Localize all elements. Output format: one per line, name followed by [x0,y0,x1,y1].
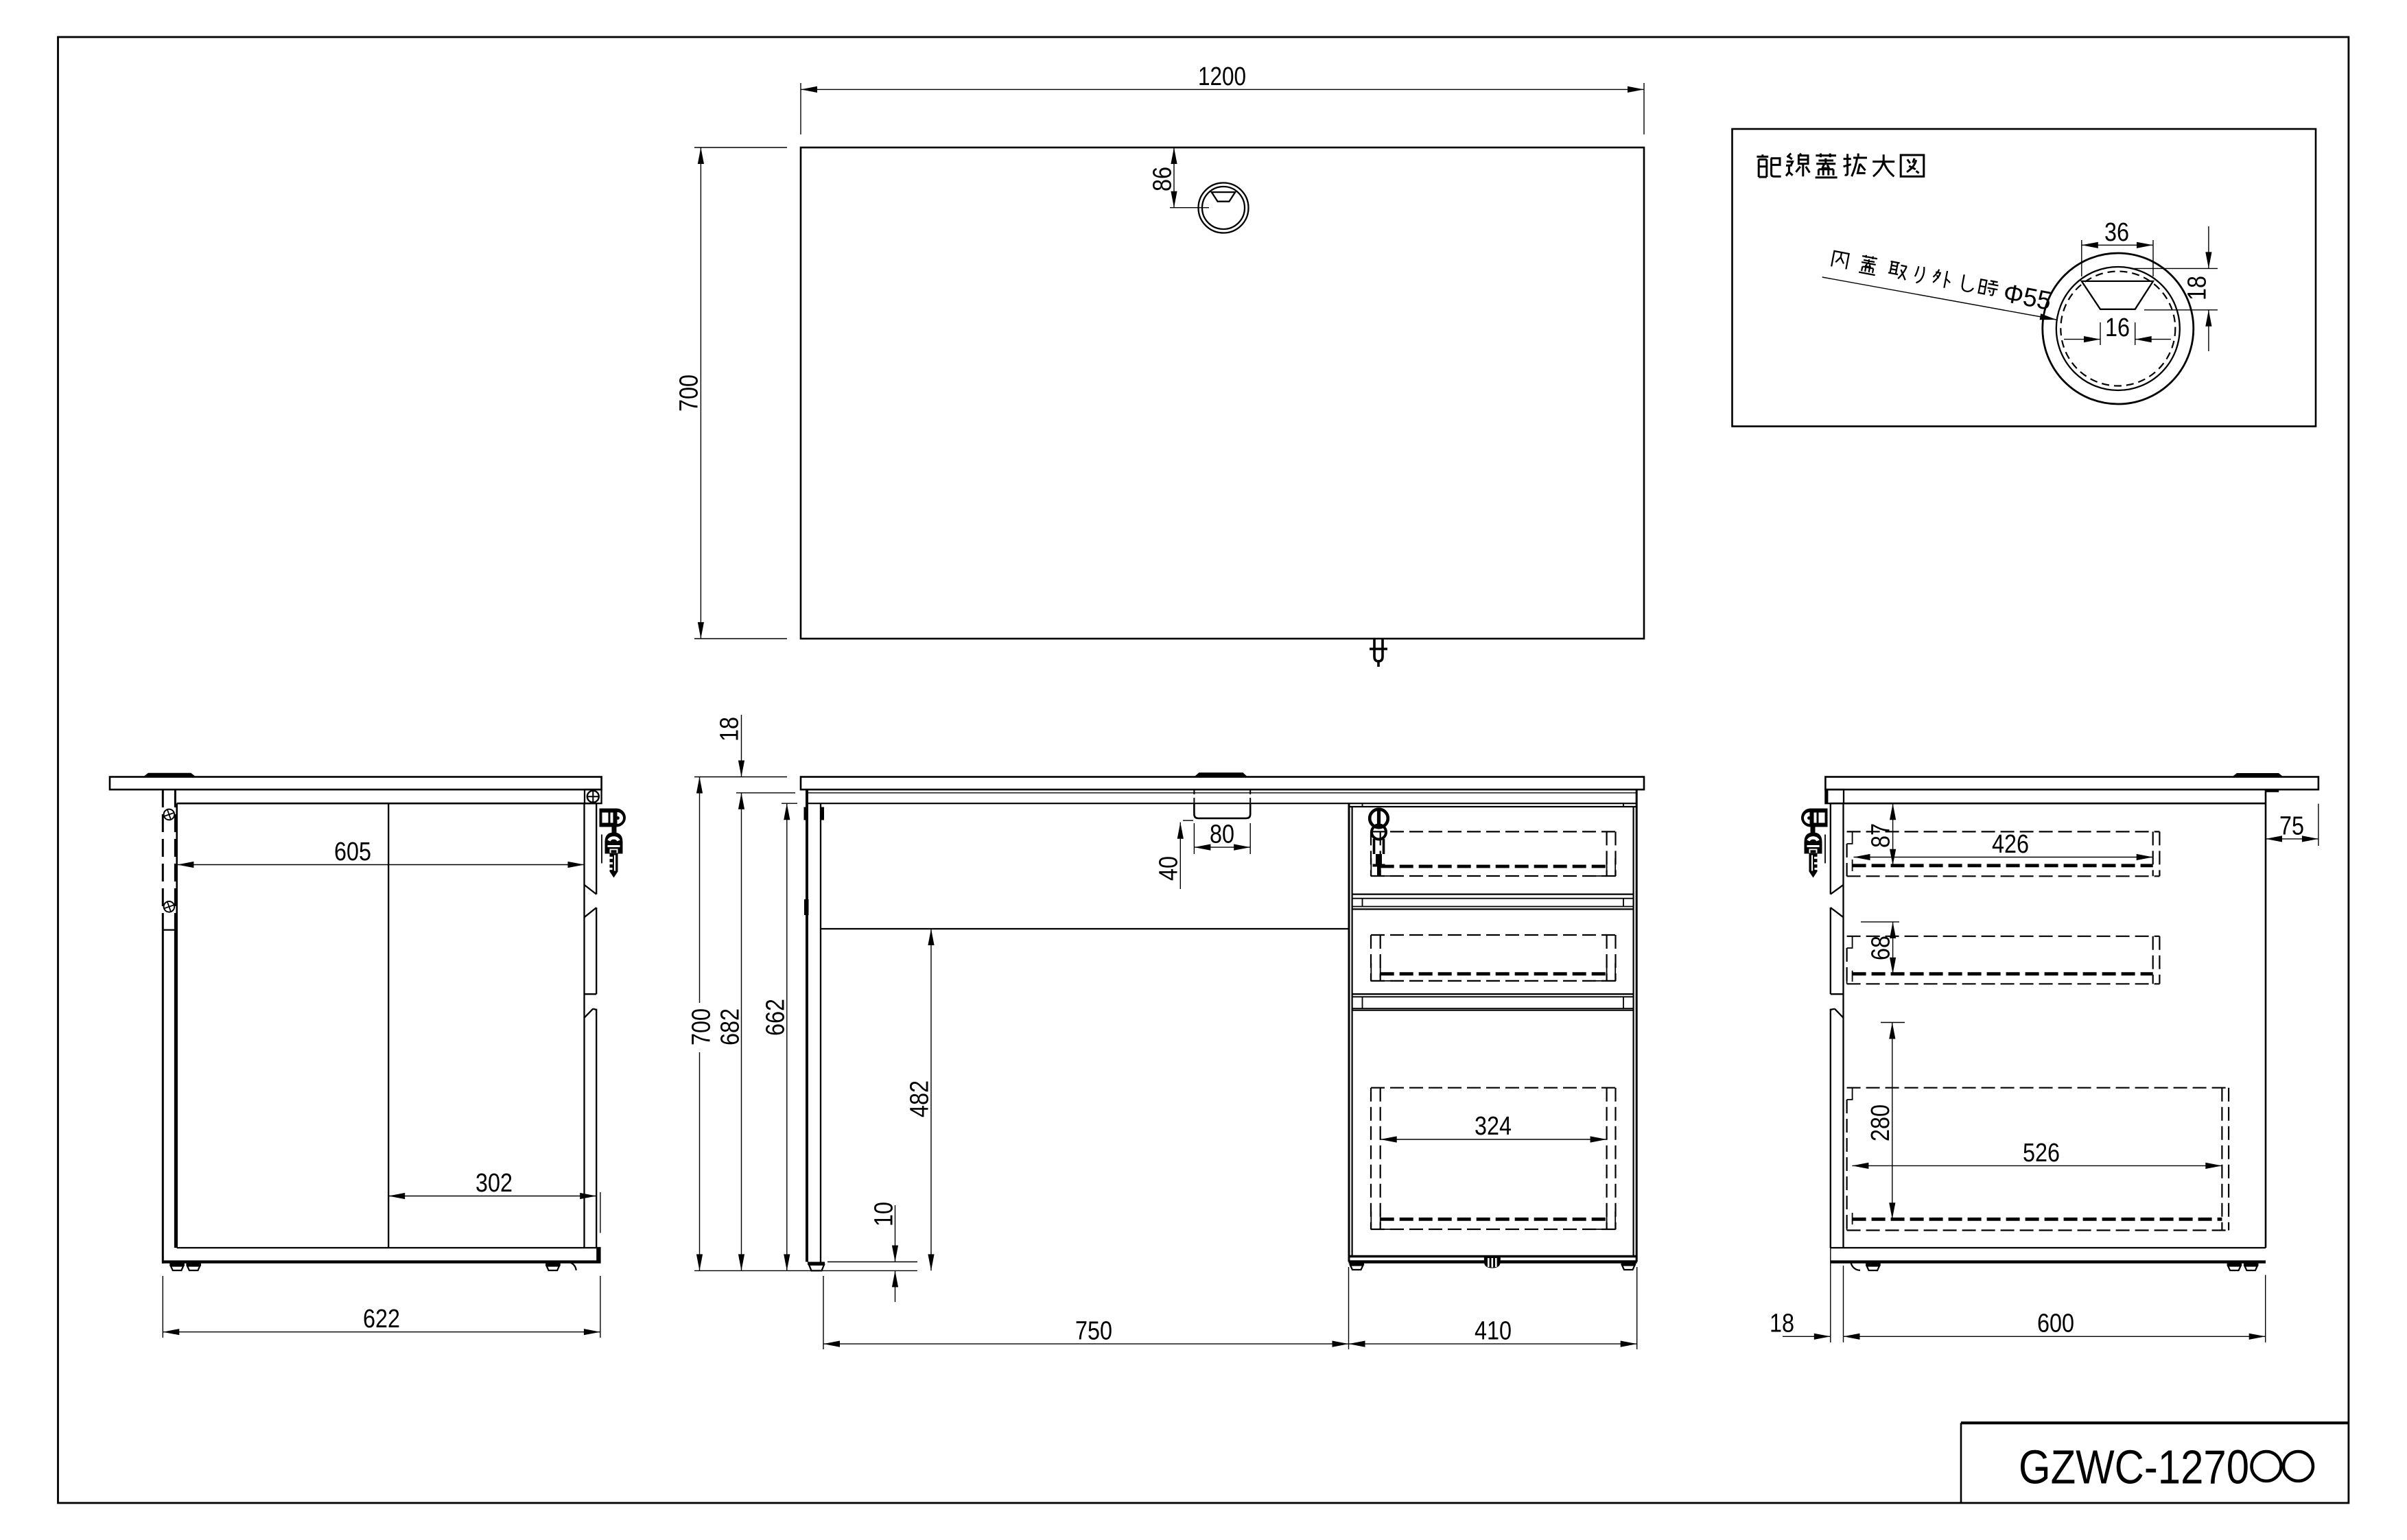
svg-text:280: 280 [1866,1104,1895,1141]
svg-text:526: 526 [2023,1139,2060,1168]
svg-text:86: 86 [1149,167,1177,191]
svg-text:18: 18 [1770,1310,1794,1338]
svg-text:324: 324 [1475,1112,1512,1141]
svg-text:682: 682 [716,1008,745,1045]
svg-text:36: 36 [2104,218,2129,247]
svg-text:410: 410 [1475,1317,1512,1346]
svg-text:302: 302 [475,1169,513,1198]
svg-text:16: 16 [2105,313,2130,342]
svg-text:18: 18 [716,717,744,742]
svg-text:10: 10 [870,1202,899,1227]
svg-text:622: 622 [363,1305,400,1334]
svg-text:482: 482 [906,1080,935,1117]
svg-text:40: 40 [1155,856,1184,881]
svg-text:80: 80 [1210,820,1234,849]
svg-text:700: 700 [675,375,704,412]
svg-text:GZWC-1270: GZWC-1270 [2019,1441,2249,1494]
svg-text:605: 605 [334,838,371,866]
svg-text:662: 662 [762,999,790,1036]
svg-text:750: 750 [1075,1317,1112,1346]
svg-text:75: 75 [2279,812,2304,840]
svg-text:68: 68 [1867,936,1896,960]
svg-text:1200: 1200 [1198,62,1246,91]
svg-text:600: 600 [2037,1310,2074,1338]
svg-text:18: 18 [2183,276,2212,300]
svg-text:426: 426 [1992,830,2029,859]
svg-text:87: 87 [1867,823,1896,848]
svg-text:700: 700 [688,1008,716,1045]
